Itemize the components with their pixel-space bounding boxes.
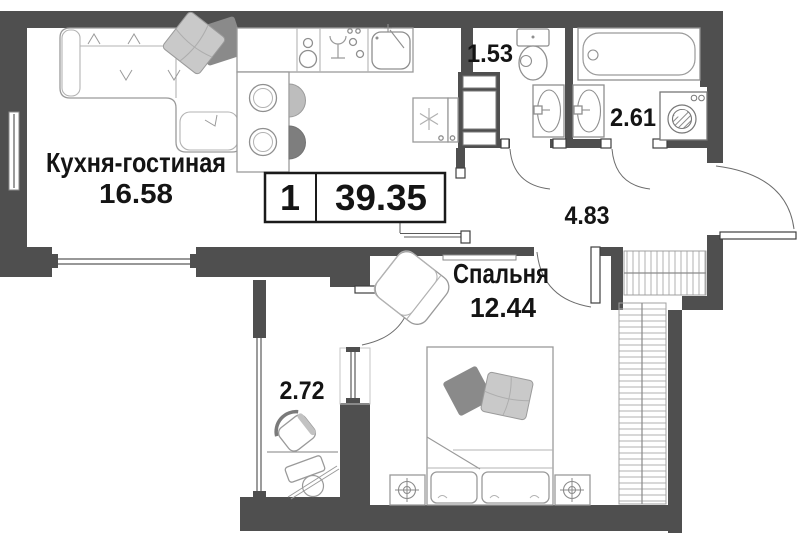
fridge (413, 98, 458, 142)
washbasin-bath (573, 85, 604, 137)
nightstand-left (390, 475, 425, 505)
shaft-cell-mid (463, 91, 496, 129)
wall-stair-corner (682, 296, 723, 310)
chair-light (289, 84, 306, 117)
zone-boundary-line (400, 222, 470, 243)
shaft-cell-bottom (463, 132, 496, 145)
kitchen-counter (237, 24, 413, 72)
wall-top (0, 11, 723, 28)
entrance-door (716, 166, 796, 239)
loggia-area: 2.72 (280, 377, 325, 405)
window-left-wall (9, 112, 19, 190)
bedroom-area: 12.44 (470, 292, 536, 323)
armchair (370, 247, 453, 329)
bed-pillow (431, 472, 477, 503)
wall-right-top-block (700, 11, 723, 87)
unit-total-area: 39.35 (335, 177, 427, 218)
window-loggia-glazing (253, 332, 266, 497)
wall-stair-right (668, 310, 682, 533)
bathroom-door (601, 139, 667, 189)
floor-plan-page: Кухня-гостиная 16.58 Спальня 12.44 1.53 … (0, 0, 803, 533)
loggia-zone (267, 406, 339, 499)
hallway-area: 4.83 (565, 202, 610, 230)
wall-stair-left (611, 247, 623, 310)
bed (427, 347, 553, 505)
bed-pillow (482, 472, 549, 503)
chair-dark (289, 126, 306, 159)
hob-large-burner (300, 51, 317, 68)
hob-small-burner (304, 39, 313, 48)
wall-bedroom-left (340, 403, 370, 505)
wall-kitchen-bottom-left (27, 247, 52, 277)
kitchen-living-label: Кухня-гостиная (46, 147, 226, 178)
corner-sofa (60, 11, 246, 152)
window-kitchen-south (52, 254, 196, 268)
desk-chair (270, 406, 319, 455)
wc-zone (517, 29, 564, 137)
kitchen-passage-sill (456, 168, 465, 178)
building-stairs (619, 251, 706, 504)
wall-wc-bath (565, 28, 573, 148)
kitchen-living-area: 16.58 (99, 178, 173, 209)
unit-badge: 1 39.35 (265, 173, 445, 222)
wc-door (501, 139, 566, 189)
wc-area: 1.53 (467, 40, 513, 68)
wall-corner-block (330, 247, 370, 287)
wall-right-upper (707, 87, 723, 163)
wall-bottom-right (370, 505, 682, 531)
wall-loggia-left-top (253, 280, 266, 332)
washing-machine (660, 92, 707, 140)
washbasin-wc (533, 85, 564, 137)
toilet (517, 29, 549, 80)
floor-plan: Кухня-гостиная 16.58 Спальня 12.44 1.53 … (0, 0, 803, 533)
bathroom-area: 2.61 (610, 104, 656, 132)
dining-table (237, 72, 306, 172)
bathtub (578, 28, 700, 80)
window-bedroom-loggia (340, 347, 370, 404)
bedroom-label: Спальня (453, 258, 549, 289)
shaft-cell-top (463, 76, 496, 88)
unit-rooms-count: 1 (280, 177, 300, 218)
nightstand-right (555, 475, 590, 505)
